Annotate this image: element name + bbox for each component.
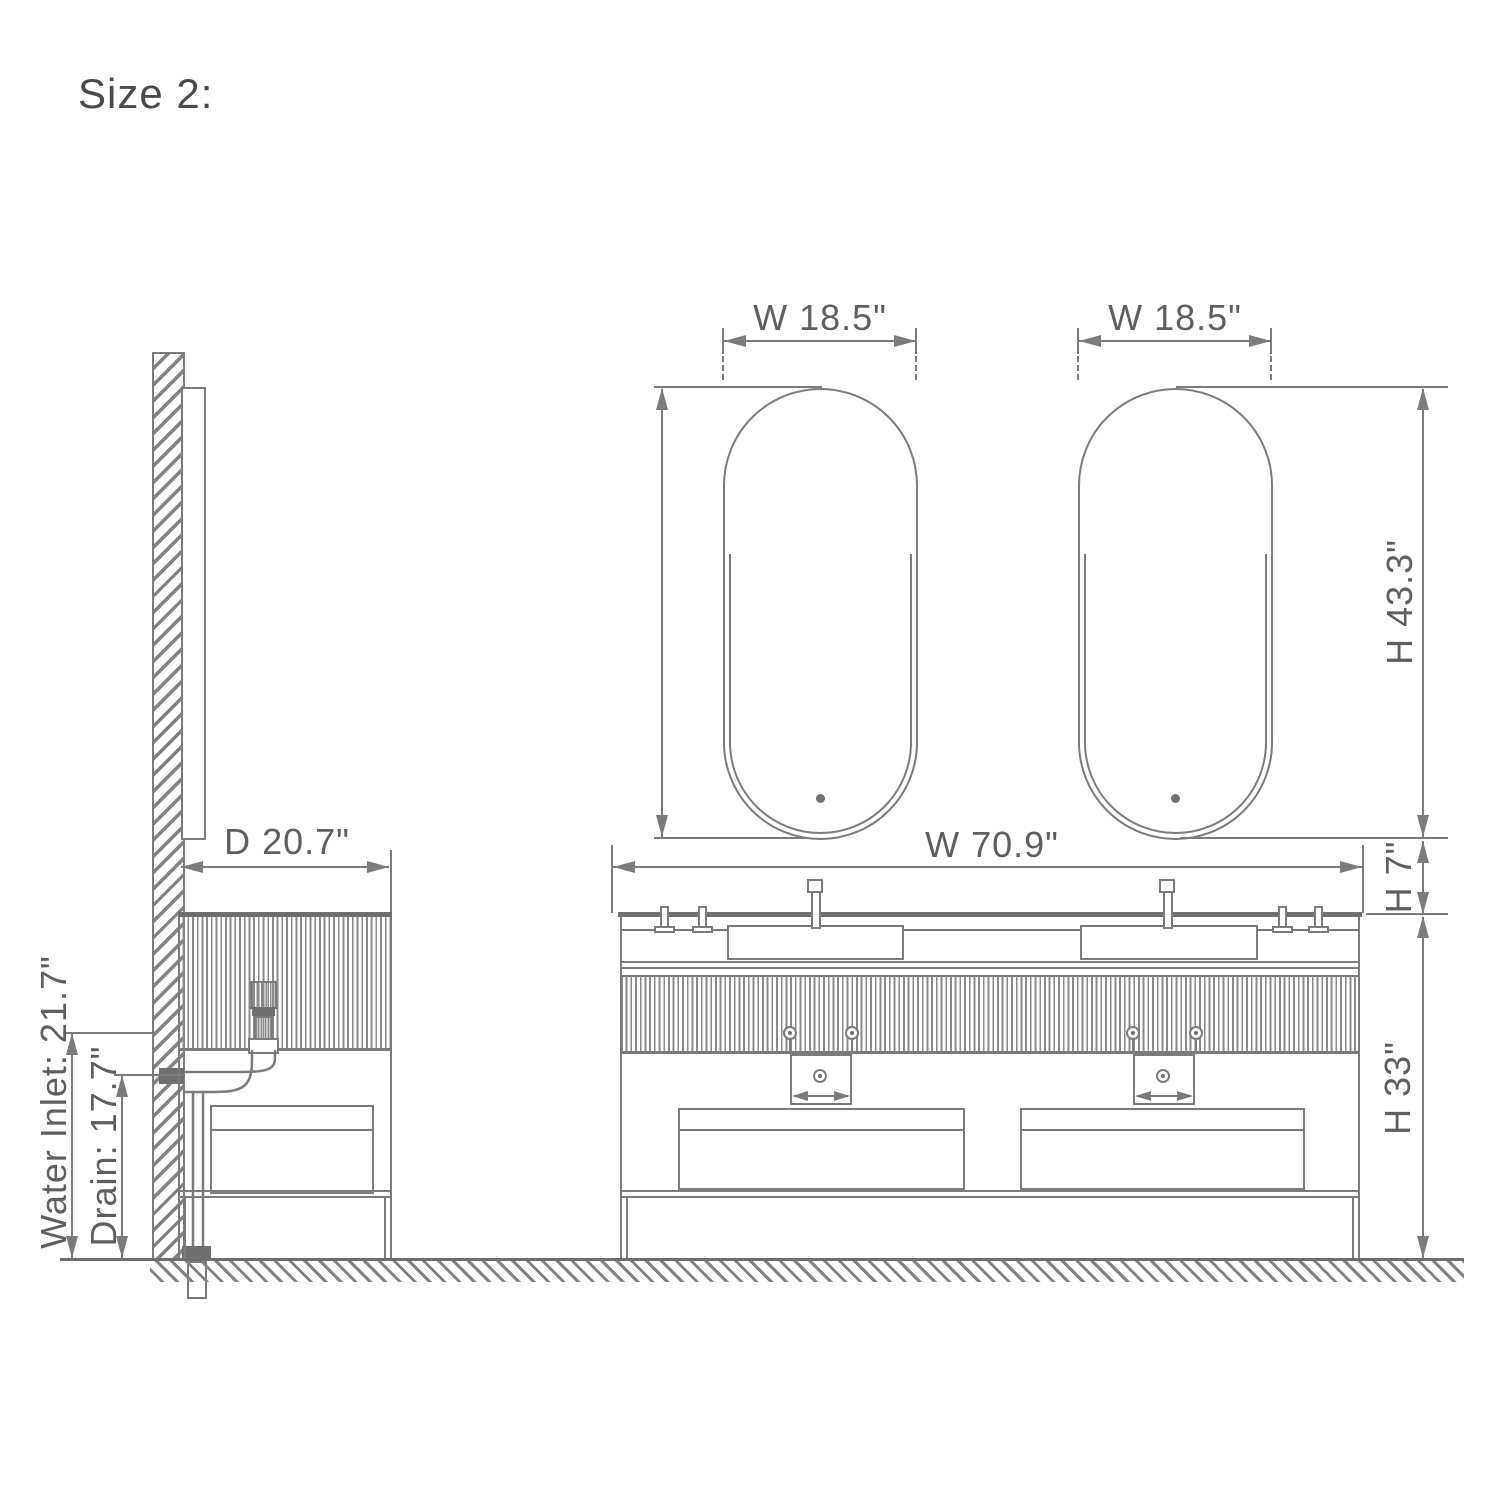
side-shelf-line — [178, 1190, 392, 1192]
dim-line-mirror-height-left — [661, 389, 663, 837]
dim-line-cabinet-height — [1422, 917, 1424, 1258]
ext-line — [1180, 837, 1448, 839]
arrowhead — [1417, 916, 1429, 938]
ext-line — [654, 837, 806, 839]
panel-knob-dot — [788, 1031, 792, 1035]
sink-right — [1080, 925, 1258, 960]
deck-line — [904, 929, 1080, 931]
panel-knob-dot — [1131, 1031, 1135, 1035]
side-basket — [210, 1105, 374, 1194]
mirror-right-led-sensor — [1171, 794, 1180, 803]
apron-line — [621, 967, 1359, 969]
mirror-left-led-sensor — [816, 794, 825, 803]
countertop-line — [618, 912, 1362, 917]
mirror-left-width-label: W 18.5" — [753, 297, 887, 339]
technical-drawing-canvas: Size 2: D 20.7" — [0, 0, 1500, 1500]
ext-line — [611, 845, 613, 913]
deck-knob-base — [692, 926, 713, 933]
panel-knob-stem — [851, 1040, 853, 1053]
apron-line — [621, 961, 1359, 963]
fluted-drawer-panel — [621, 975, 1359, 1054]
cabinet-right-edge — [1358, 917, 1360, 1258]
mirror-side-profile — [181, 387, 206, 840]
arrowhead — [181, 861, 203, 873]
arrowhead — [894, 335, 916, 347]
arrowhead — [1079, 335, 1101, 347]
dim-line-mirror-height — [1422, 389, 1424, 837]
water-inlet-valve — [159, 1068, 184, 1084]
mirror-right-width-label: W 18.5" — [1108, 297, 1242, 339]
faucet-right-stem — [1163, 891, 1173, 929]
side-leg-line — [184, 1198, 186, 1258]
side-cabinet-back-edge — [178, 917, 180, 1258]
faucet-left-stem — [811, 891, 821, 929]
ext-line — [1362, 845, 1364, 913]
basket-right-rail — [1020, 1129, 1305, 1131]
access-box-knob-dot — [818, 1074, 822, 1078]
drain-floor-flange — [182, 1246, 211, 1258]
side-leg-line — [384, 1198, 386, 1258]
deck-knob-base — [654, 926, 675, 933]
arrowhead — [792, 1091, 808, 1101]
drain-assembly-band — [252, 1007, 275, 1016]
countertop-height-label: H 7" — [1378, 841, 1420, 914]
drain-assembly-body — [254, 1016, 273, 1040]
basket-left-rail — [678, 1129, 965, 1131]
deck-knob-base — [1272, 926, 1293, 933]
dim-line-vanity-width — [613, 866, 1362, 868]
arrowhead — [1340, 861, 1362, 873]
side-shelf-line — [178, 1196, 392, 1198]
faucet-right-cap — [1159, 879, 1175, 893]
mirror-right-inner-frame — [1084, 394, 1267, 834]
basket-right — [1020, 1108, 1305, 1190]
ext-tick-dashed — [722, 356, 724, 380]
arrowhead — [1417, 1236, 1429, 1258]
cabinet-height-label: H 33" — [1377, 1041, 1419, 1135]
panel-knob-dot — [850, 1031, 854, 1035]
arrowhead — [656, 388, 668, 410]
arrowhead — [367, 861, 389, 873]
sink-left — [727, 925, 904, 960]
panel-knob-stem — [1132, 1040, 1134, 1053]
panel-knob-dot — [1194, 1031, 1198, 1035]
dim-line-mirror-right-width — [1079, 340, 1271, 342]
dim-line-mirror-left-width — [724, 340, 916, 342]
shelf-line — [621, 1196, 1359, 1198]
water-inlet-label: Water Inlet: 21.7" — [33, 955, 75, 1249]
depth-label: D 20.7" — [224, 821, 350, 863]
arrowhead — [724, 335, 746, 347]
ext-tick-dashed — [915, 356, 917, 380]
basket-left — [678, 1108, 965, 1190]
ext-tick-dashed — [1270, 356, 1272, 380]
dim-line-depth — [181, 866, 389, 868]
arrowhead — [1249, 335, 1271, 347]
faucet-left-cap — [807, 879, 823, 893]
arrowhead — [1417, 388, 1429, 410]
shelf-line — [621, 1190, 1359, 1192]
ext-line — [1176, 386, 1448, 388]
arrowhead — [834, 1091, 850, 1101]
vanity-width-label: W 70.9" — [925, 824, 1059, 866]
drain-popup-assembly — [250, 981, 277, 1009]
ext-line — [654, 386, 822, 388]
mirror-right — [1078, 388, 1273, 840]
mirror-left-inner-frame — [729, 394, 912, 834]
cabinet-left-edge — [620, 917, 622, 1258]
mirror-height-label: H 43.3" — [1379, 539, 1421, 665]
side-fluted-panel — [178, 917, 392, 1051]
arrowhead — [1135, 1091, 1151, 1101]
panel-knob-stem — [1195, 1040, 1197, 1053]
side-cabinet-front-edge — [390, 917, 392, 1258]
ext-tick-dashed — [1077, 356, 1079, 380]
mirror-left — [723, 388, 918, 840]
leg-line — [1352, 1198, 1354, 1258]
side-basket-rail — [210, 1129, 372, 1131]
arrowhead — [613, 861, 635, 873]
deck-knob-base — [1308, 926, 1329, 933]
page-title: Size 2: — [78, 70, 213, 118]
arrowhead — [1417, 815, 1429, 837]
arrowhead — [1177, 1091, 1193, 1101]
leg-line — [626, 1198, 628, 1258]
ext-line — [390, 850, 392, 914]
access-box-knob-dot — [1161, 1074, 1165, 1078]
drain-label: Drain: 17.7" — [83, 1046, 125, 1247]
floor-hatch — [150, 1261, 1464, 1282]
panel-knob-stem — [789, 1040, 791, 1053]
arrowhead — [656, 815, 668, 837]
drain-coupling — [248, 1038, 279, 1054]
